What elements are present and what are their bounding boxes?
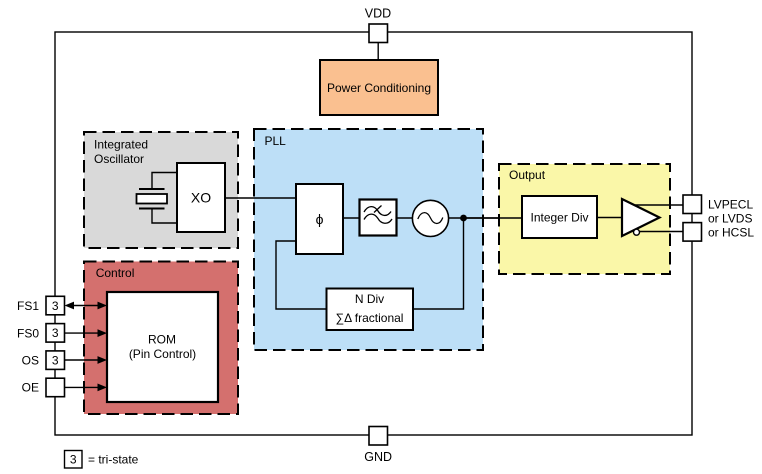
svg-text:VDD: VDD <box>365 7 391 21</box>
svg-text:3: 3 <box>52 354 59 368</box>
svg-text:ϕ: ϕ <box>316 211 324 227</box>
svg-text:ROM: ROM <box>148 333 176 347</box>
svg-text:3: 3 <box>52 326 59 340</box>
svg-text:XO: XO <box>191 190 211 206</box>
svg-text:Output: Output <box>509 168 546 182</box>
svg-text:or LVDS: or LVDS <box>708 211 752 225</box>
svg-text:FS0: FS0 <box>17 326 39 340</box>
svg-text:OE: OE <box>22 380 39 394</box>
svg-text:PLL: PLL <box>265 134 287 148</box>
svg-text:3: 3 <box>70 452 77 466</box>
svg-text:LVPECL: LVPECL <box>708 197 753 211</box>
svg-text:or HCSL: or HCSL <box>708 226 754 240</box>
svg-text:(Pin Control): (Pin Control) <box>129 347 196 361</box>
svg-text:∑Δ fractional: ∑Δ fractional <box>336 311 404 325</box>
svg-text:GND: GND <box>364 450 392 464</box>
svg-text:Oscillator: Oscillator <box>94 152 144 166</box>
svg-text:Integrated: Integrated <box>94 138 148 152</box>
svg-text:N Div: N Div <box>355 292 384 306</box>
svg-text:Control: Control <box>96 266 135 280</box>
svg-text:Integer Div: Integer Div <box>530 211 588 225</box>
svg-text:= tri-state: = tri-state <box>88 453 139 467</box>
svg-text:Power Conditioning: Power Conditioning <box>327 81 431 95</box>
svg-text:OS: OS <box>22 353 39 367</box>
svg-text:FS1: FS1 <box>17 299 39 313</box>
svg-text:3: 3 <box>52 299 59 313</box>
